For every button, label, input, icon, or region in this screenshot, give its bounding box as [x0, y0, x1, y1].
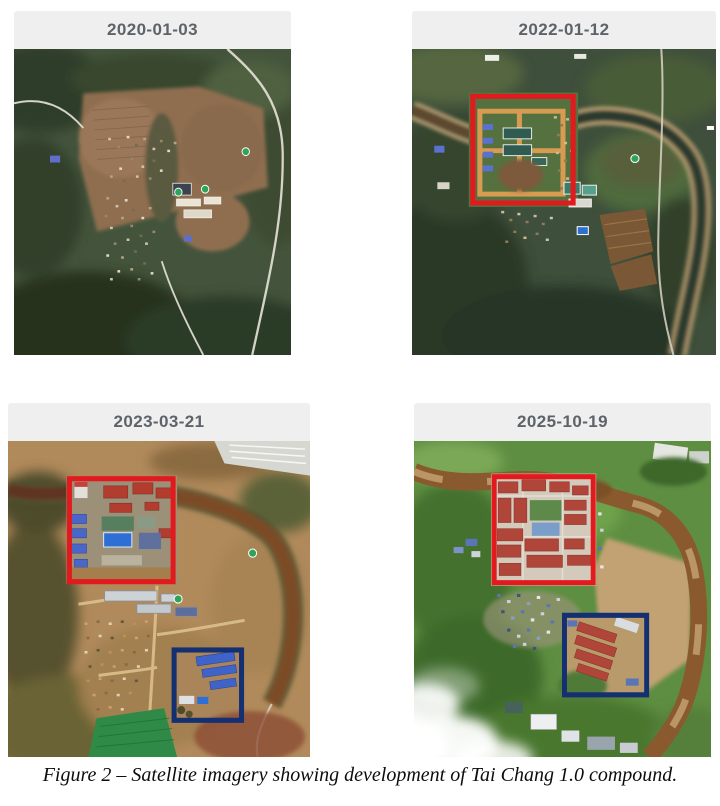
compound-buildings	[66, 476, 177, 584]
panel-2023-03-21: 2023-03-21	[8, 403, 310, 757]
sports-courts	[102, 516, 134, 530]
satellite-image-2025	[414, 441, 711, 757]
panel-date-header: 2025-10-19	[414, 403, 711, 441]
satellite-art-2020	[14, 49, 291, 355]
compound-under-construction	[469, 92, 578, 207]
pool	[532, 523, 560, 536]
satellite-art-2022	[412, 49, 716, 355]
second-compound	[558, 613, 649, 701]
satellite-image-2023	[8, 441, 310, 757]
second-compound	[172, 648, 243, 722]
map-pin-icon	[631, 155, 639, 163]
pool	[104, 533, 132, 547]
figure-caption: Figure 2 – Satellite imagery showing dev…	[0, 764, 720, 787]
figure-2-satellite-grid: 2020-01-03	[0, 11, 720, 787]
panel-2025-10-19: 2025-10-19	[414, 403, 711, 757]
panel-date-header: 2022-01-12	[412, 11, 716, 49]
pool	[577, 227, 588, 235]
panel-row-bottom: 2023-03-21	[8, 403, 711, 757]
compound-buildings	[491, 474, 596, 586]
panel-date-header: 2020-01-03	[14, 11, 291, 49]
sports-courts	[530, 500, 562, 520]
panel-row-top: 2020-01-03	[14, 11, 716, 355]
dirt-patch	[498, 160, 543, 192]
satellite-art-2025	[414, 441, 711, 757]
panel-2020-01-03: 2020-01-03	[14, 11, 291, 355]
satellite-image-2022	[412, 49, 716, 355]
panel-2022-01-12: 2022-01-12	[412, 11, 716, 355]
panel-date-header: 2023-03-21	[8, 403, 310, 441]
satellite-art-2023	[8, 441, 310, 757]
satellite-image-2020	[14, 49, 291, 355]
